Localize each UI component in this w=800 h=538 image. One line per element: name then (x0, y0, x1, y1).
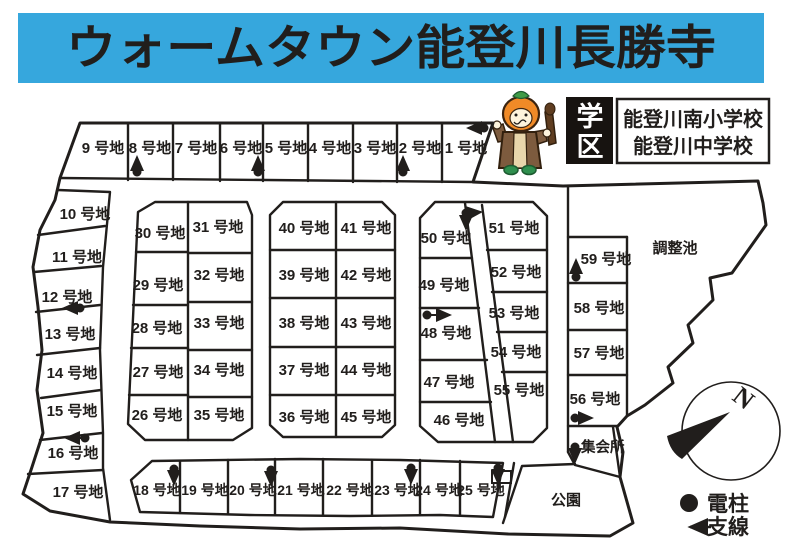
pond-label: 調整池 (652, 239, 697, 257)
pole-icon (423, 311, 432, 320)
lot-label-41: 41 号地 (341, 219, 392, 237)
top-row-bottom-edge (60, 178, 473, 182)
lot-label-5: 5 号地 (265, 139, 308, 157)
mascot-character (493, 92, 556, 175)
mascot-face (510, 109, 532, 128)
lot-label-54: 54 号地 (491, 343, 542, 361)
lot-label-6: 6 号地 (220, 139, 263, 157)
block-46-55-road-east-line (482, 205, 513, 442)
legend-wire-label: 支線 (707, 515, 749, 538)
lot-label-21: 21 号地 (277, 482, 324, 498)
wire-arrow-icon (470, 212, 481, 213)
pole-icon (407, 464, 416, 473)
lot-label-30: 30 号地 (135, 224, 186, 242)
lot-label-26: 26 号地 (132, 406, 183, 424)
lot-label-35: 35 号地 (194, 406, 245, 424)
lot-label-17: 17 号地 (53, 483, 104, 501)
lot-label-9: 9 号地 (82, 139, 125, 157)
site-map-page: ウォームタウン能登川長勝寺 学 区 能登川南小学校 能登川中学校 (0, 0, 800, 538)
lot-label-13: 13 号地 (45, 325, 96, 343)
junior-high-school-name: 能登川中学校 (633, 134, 754, 158)
lot-label-36: 36 号地 (279, 408, 330, 426)
lot-label-15: 15 号地 (47, 402, 98, 420)
park-label: 公園 (551, 492, 581, 509)
lot-label-34: 34 号地 (194, 361, 245, 379)
lot-label-27: 27 号地 (133, 363, 184, 381)
pole-icon (572, 273, 581, 282)
mascot-eye-right (525, 114, 528, 117)
pole-icon (399, 168, 408, 177)
mascot-club-head (545, 103, 555, 115)
lot-label-40: 40 号地 (279, 219, 330, 237)
lot-label-1: 1 号地 (445, 139, 488, 157)
pole-icon (254, 168, 263, 177)
lot-label-43: 43 号地 (341, 314, 392, 332)
compass-north-label: N (727, 381, 760, 416)
school-district-tag-char-2: 区 (577, 132, 604, 162)
lot-label-52: 52 号地 (491, 263, 542, 281)
lot-label-37: 37 号地 (279, 361, 330, 379)
legend-pole-label: 電柱 (707, 492, 749, 516)
lot-label-3: 3 号地 (354, 139, 397, 157)
lot-label-59: 59 号地 (581, 250, 632, 268)
lot-label-2: 2 号地 (399, 139, 442, 157)
lot-label-49: 49 号地 (419, 276, 470, 294)
school-district-tag-char-1: 学 (577, 101, 604, 132)
lot-label-10: 10 号地 (60, 205, 111, 223)
lot-label-28: 28 号地 (132, 319, 183, 337)
lot-label-42: 42 号地 (341, 266, 392, 284)
lot-label-4: 4 号地 (309, 139, 352, 157)
map-legend: 電柱 支線 (680, 492, 749, 538)
lot-label-22: 22 号地 (326, 482, 373, 498)
mascot-left-foot (504, 166, 518, 175)
lot-label-46: 46 号地 (434, 411, 485, 429)
lot-label-14: 14 号地 (47, 364, 98, 382)
lot-label-11: 11 号地 (52, 248, 102, 266)
lot-label-38: 38 号地 (279, 314, 330, 332)
pole-icon (133, 168, 142, 177)
lot-label-20: 20 号地 (229, 482, 276, 498)
lot-label-18: 18 号地 (133, 482, 180, 498)
lot-label-33: 33 号地 (194, 314, 245, 332)
lot-label-56: 56 号地 (570, 390, 621, 408)
lot-label-53: 53 号地 (489, 304, 540, 322)
lot-label-29: 29 号地 (133, 276, 184, 294)
lot-label-16: 16 号地 (48, 444, 99, 462)
lot-label-8: 8 号地 (129, 139, 172, 157)
lot-label-47: 47 号地 (424, 373, 475, 391)
mascot-robe (513, 133, 527, 168)
hall-label: 集会所 (580, 438, 625, 456)
mascot-eye-left (515, 114, 518, 117)
pole-icon (571, 443, 580, 452)
lot-label-32: 32 号地 (194, 266, 245, 284)
lot-label-24: 24 号地 (415, 482, 462, 498)
pole-icon (81, 434, 90, 443)
mascot-right-hand (543, 129, 551, 137)
mascot-calyx-leaf (513, 92, 529, 99)
lot-label-55: 55 号地 (494, 381, 545, 399)
lot-label-51: 51 号地 (489, 219, 540, 237)
lot-label-58: 58 号地 (574, 299, 625, 317)
compass: N (667, 381, 780, 480)
lot-label-12: 12 号地 (42, 288, 93, 306)
lot-label-25: 25 号地 (457, 482, 504, 498)
pole-icon (267, 466, 276, 475)
lot-label-39: 39 号地 (279, 266, 330, 284)
page-title: ウォームタウン能登川長勝寺 (66, 21, 716, 74)
pole-icon (571, 414, 580, 423)
lot-label-45: 45 号地 (341, 408, 392, 426)
lot-label-57: 57 号地 (574, 344, 625, 362)
pole-icon (494, 464, 503, 473)
elementary-school-name: 能登川南小学校 (623, 107, 764, 131)
pole-icon (462, 209, 471, 218)
compass-needle-icon (667, 412, 730, 459)
lot-label-19: 19 号地 (181, 482, 228, 498)
lot-label-7: 7 号地 (175, 139, 218, 157)
pole-icon (480, 124, 489, 133)
lot-label-31: 31 号地 (193, 218, 244, 236)
subdivision-map-canvas: ウォームタウン能登川長勝寺 学 区 能登川南小学校 能登川中学校 (0, 0, 800, 538)
pole-icon (170, 465, 179, 474)
legend-pole-icon (680, 494, 698, 512)
lot-label-48: 48 号地 (421, 324, 472, 342)
lot-label-50: 50 号地 (421, 229, 472, 247)
lot-label-44: 44 号地 (341, 361, 392, 379)
mascot-right-foot (522, 166, 536, 175)
